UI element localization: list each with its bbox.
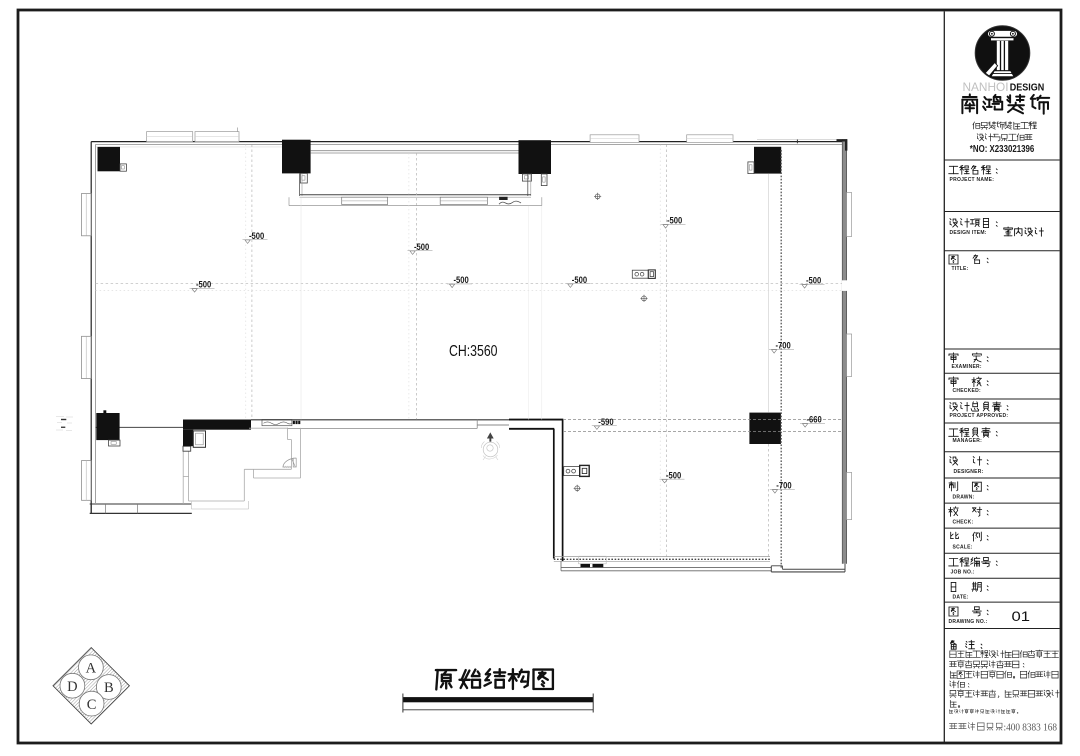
svg-text:DESIGN ITEM:: DESIGN ITEM:	[950, 230, 987, 236]
svg-text:-660: -660	[807, 415, 822, 425]
svg-text:*NO: X233021396: *NO: X233021396	[970, 144, 1035, 155]
svg-text:-500: -500	[249, 231, 264, 241]
svg-text:TITLE:: TITLE:	[952, 266, 969, 272]
svg-text:DRAWN:: DRAWN:	[953, 495, 975, 501]
svg-text:-500: -500	[666, 470, 681, 480]
svg-text:-500: -500	[572, 275, 587, 285]
svg-text:EXAMINER:: EXAMINER:	[952, 364, 982, 370]
svg-text:PROJECT APPROVED:: PROJECT APPROVED:	[950, 413, 1009, 419]
svg-text:DESIGNER:: DESIGNER:	[954, 469, 984, 475]
svg-text:C: C	[87, 697, 97, 713]
svg-text:DRAWING NO.:: DRAWING NO.:	[949, 619, 988, 625]
svg-text:-500: -500	[414, 242, 429, 252]
svg-text:-500: -500	[196, 280, 211, 290]
svg-text:-590: -590	[598, 417, 613, 427]
svg-text:MANAGER:: MANAGER:	[953, 438, 983, 444]
svg-text:A: A	[86, 661, 97, 677]
svg-text:B: B	[104, 680, 114, 696]
svg-text:CHECK:: CHECK:	[953, 520, 974, 526]
svg-text:CHECKED:: CHECKED:	[953, 388, 981, 394]
svg-text:DESIGN: DESIGN	[1010, 83, 1045, 94]
svg-text::400 8383 168: :400 8383 168	[1004, 722, 1058, 733]
svg-text:01: 01	[1012, 609, 1031, 625]
svg-text:PROJECT NAME:: PROJECT NAME:	[950, 177, 995, 183]
svg-text:-500: -500	[806, 276, 821, 286]
svg-text:SCALE:: SCALE:	[953, 545, 973, 551]
svg-text:NANHOI: NANHOI	[963, 81, 1009, 94]
svg-text:JOB NO.:: JOB NO.:	[951, 570, 975, 576]
svg-text:-500: -500	[454, 275, 469, 285]
svg-text:-700: -700	[776, 481, 791, 491]
svg-text:-500: -500	[667, 216, 682, 226]
svg-text:DATE:: DATE:	[953, 595, 969, 601]
svg-text:-700: -700	[776, 341, 791, 351]
svg-text:D: D	[67, 679, 77, 695]
svg-text:CH:3560: CH:3560	[449, 343, 498, 360]
